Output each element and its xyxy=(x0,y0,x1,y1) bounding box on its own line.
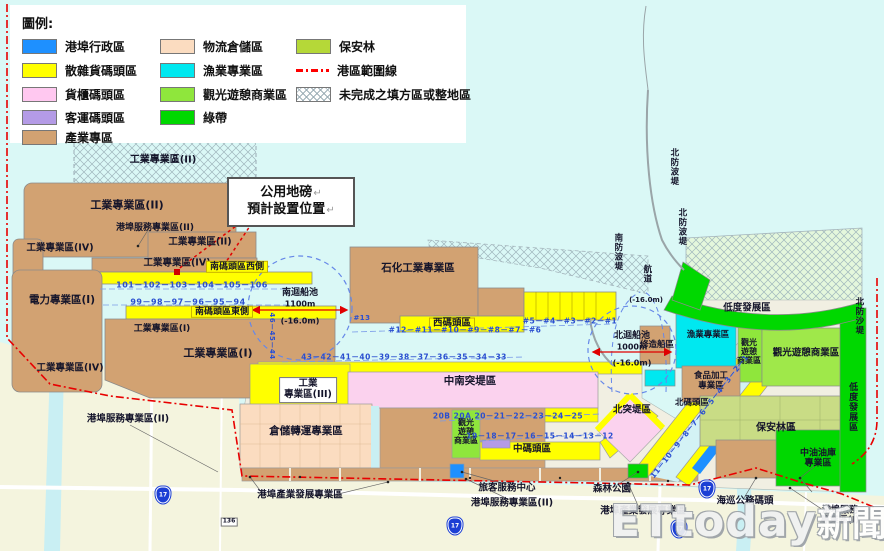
berth-west-13: #13 xyxy=(353,314,370,322)
color-swatch xyxy=(160,87,195,102)
color-swatch xyxy=(22,63,57,78)
callout-line1: 公用地磅↵ xyxy=(260,185,321,202)
watermark-suffix: 新聞雲 xyxy=(817,505,884,545)
color-swatch xyxy=(296,39,331,54)
color-swatch xyxy=(22,87,57,102)
zone-label-power1: 電力專業區(I) xyxy=(29,294,95,306)
color-swatch xyxy=(22,110,57,125)
zone-label-ind4-c: 工業專業區(IV) xyxy=(36,364,103,375)
legend-item: 漁業專業區 xyxy=(160,62,263,79)
legend-item: 觀光遊憩商業區 xyxy=(160,86,287,103)
north-basin-name: 北迴船池 xyxy=(614,331,650,341)
zone-label-south-breakwater: 南防波堤 xyxy=(612,233,622,271)
zone-label-ind1-a: 工業專業區(I) xyxy=(134,324,191,334)
north-basin-width: 1000m xyxy=(617,342,648,351)
north-basin-depth: (-16.0m) xyxy=(613,358,652,367)
zone-label-low-dev-h: 低度發展區 xyxy=(723,304,771,315)
color-swatch xyxy=(160,63,195,78)
zone-label-ind4-b: 工業專業區(IV) xyxy=(143,259,210,270)
channel-label: 航道 xyxy=(641,265,651,284)
zone-label-ind1-b: 工業專業區(I) xyxy=(183,348,252,361)
zone-label-mid-wharf: 中碼頭區 xyxy=(513,445,551,456)
zone-label-ind2-hatch: 工業專業區(II) xyxy=(130,154,197,166)
road-number-badge: 136 xyxy=(221,518,238,527)
legend-item: 物流倉儲區 xyxy=(160,38,263,55)
zone-label-fishery: 漁業專業區 xyxy=(687,331,730,341)
zone-label-ind4-a: 工業專業區(IV) xyxy=(26,244,93,255)
zone-label-ind2-b: 工業專業區(II) xyxy=(168,238,231,249)
zone-label-port-service2-c: 港埠服務專業區(II) xyxy=(471,499,553,510)
zone-label-north-sand-dike: 北防沙堤 xyxy=(853,297,863,335)
zone-label-port-service2-b: 港埠服務專業區(II) xyxy=(87,415,169,426)
legend-item: 港埠行政區 xyxy=(22,38,125,55)
zone-label-low-dev-v: 低度發展區 xyxy=(847,382,857,432)
watermark-brand: ETtoday xyxy=(610,496,817,547)
zone-label-port-service2-a: 港埠服務專業區(II) xyxy=(116,223,194,233)
zone-label-south-wharf-west: 南碼頭區西側 xyxy=(206,261,268,273)
berths-south-west: 101－102－103－104－105－106 xyxy=(116,280,268,289)
return-mark: ↵ xyxy=(313,188,321,199)
zone-label-north-breakwater-1: 北防波堤 xyxy=(668,148,678,186)
berths-west-main: #12－#11－#10－#9－#8－#7－#6 xyxy=(389,327,542,336)
zone-label-port-industry-dev-1: 港埠產業發展專業區 xyxy=(257,491,343,502)
south-basin-name: 南迴船池 xyxy=(282,288,318,298)
callout-line2: 預計設置位置↵ xyxy=(247,202,334,219)
zone-label-forest-reserve: 保安林區 xyxy=(756,422,796,434)
watermark: ETtoday新聞雲 xyxy=(610,496,884,547)
legend-item: 產業專區 xyxy=(22,129,113,146)
channel-depth: (-16.0m) xyxy=(629,296,663,304)
legend-item: 未完成之填方區或整地區 xyxy=(296,86,471,103)
port-plan-map: 圖例: 港埠行政區 散雜貨碼頭區 貨櫃碼頭區 客運碼頭區 產業專區 物流倉儲區 … xyxy=(0,0,884,551)
berths-south-east: 99－98－97－96－95－94 xyxy=(130,297,245,306)
boundary-line-swatch xyxy=(296,69,329,72)
zone-label-tourism-big: 觀光遊憩商業區 xyxy=(773,349,840,360)
color-swatch xyxy=(160,39,195,54)
legend-item: 散雜貨碼頭區 xyxy=(22,62,137,79)
zone-label-south-wharf-east: 南碼頭區東側 xyxy=(191,306,253,318)
legend-item: 保安林 xyxy=(296,38,375,55)
label-forest-park: 森林公園 xyxy=(593,485,631,496)
berths-mid-inner: 19－18－17－16－15－14－13－12 xyxy=(466,433,614,442)
return-mark: ↵ xyxy=(326,205,334,216)
berths-west-low: #5－#4－#3－#2－#1 xyxy=(523,318,618,327)
zone-label-north-breakwater-2: 北防波堤 xyxy=(676,208,686,246)
berths-mid-south: 20B 20A 20－21－22－23－24－25 xyxy=(433,413,583,422)
berths-mid: 43－42－41－40－39－38－37－36－35－34－33 xyxy=(301,354,507,363)
color-swatch xyxy=(22,130,57,145)
zone-label-petrochem: 石化工業專業區 xyxy=(381,262,455,274)
zone-label-warehouse: 倉儲轉運專業區 xyxy=(269,425,343,437)
zone-label-north-pier: 北突堤區 xyxy=(613,406,651,417)
label-passenger-center: 旅客服務中心 xyxy=(478,484,535,495)
zone-label-ind2-main: 工業專業區(II) xyxy=(90,200,163,213)
zone-label-ind3: 工業 專業區(III) xyxy=(279,377,337,403)
legend-item: 綠帶 xyxy=(160,109,227,126)
legend-title: 圖例: xyxy=(22,13,53,32)
color-swatch xyxy=(160,110,195,125)
color-swatch xyxy=(22,39,57,54)
zone-label-cpc-depot: 中油油庫 專業區 xyxy=(800,449,836,470)
legend-item: 貨櫃碼頭區 xyxy=(22,86,125,103)
south-basin-depth: (-16.0m) xyxy=(281,316,320,325)
legend: 圖例: 港埠行政區 散雜貨碼頭區 貨櫃碼頭區 客運碼頭區 產業專區 物流倉儲區 … xyxy=(10,5,466,143)
south-basin-width: 1100m xyxy=(285,299,316,308)
zone-label-mid-south-pier: 中南突堤區 xyxy=(444,375,497,387)
legend-item: 港區範圍線 xyxy=(296,62,397,79)
berths-corner: 46－45－44 xyxy=(268,312,276,359)
hatch-swatch xyxy=(296,87,331,102)
weighbridge-callout: 公用地磅↵ 預計設置位置↵ xyxy=(227,177,355,227)
legend-item: 客運碼頭區 xyxy=(22,109,125,126)
